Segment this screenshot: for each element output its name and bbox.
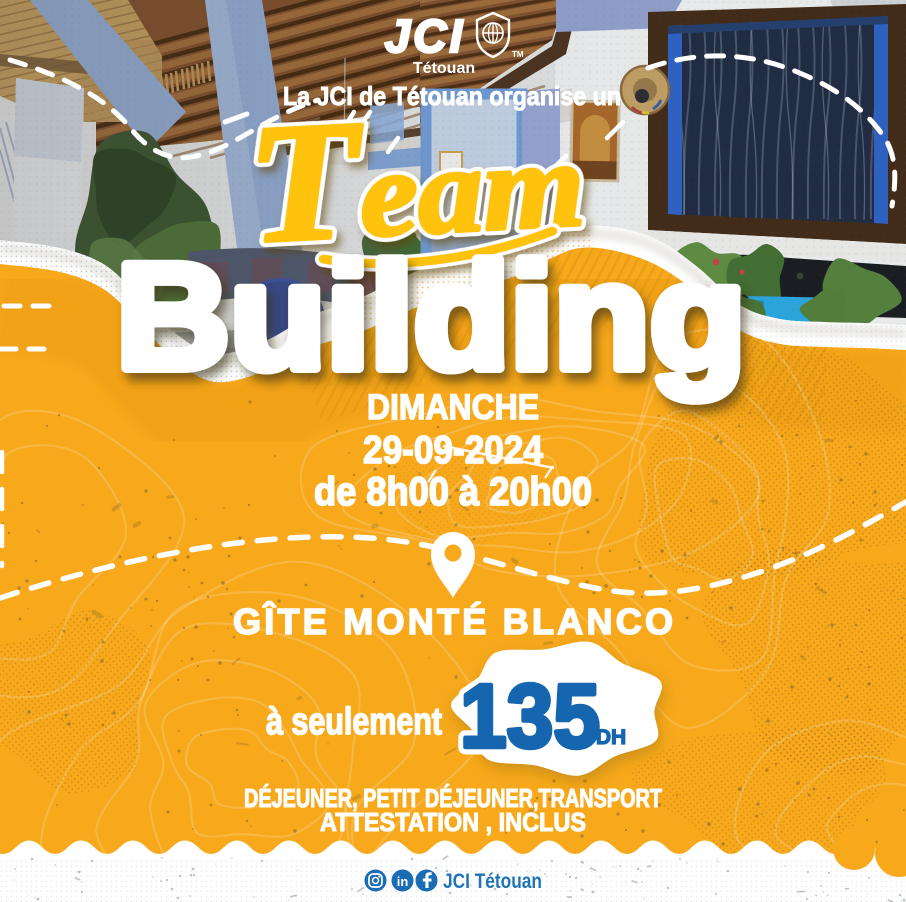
svg-text:ATTESTATION , INCLUS: ATTESTATION , INCLUS <box>320 807 586 837</box>
svg-text:Tétouan: Tétouan <box>413 60 475 77</box>
svg-text:DIMANCHE: DIMANCHE <box>367 388 539 427</box>
svg-text:GÎTE MONTÉ BLANCO: GÎTE MONTÉ BLANCO <box>233 600 673 642</box>
svg-text:à seulement: à seulement <box>266 701 442 743</box>
svg-text:JCI Tétouan: JCI Tétouan <box>443 870 542 893</box>
svg-text:DH: DH <box>596 726 626 749</box>
svg-text:Building: Building <box>116 232 746 400</box>
svg-text:de 8h00 à 20h00: de 8h00 à 20h00 <box>314 470 592 514</box>
svg-text:in: in <box>397 874 409 889</box>
svg-text:29-09-2024: 29-09-2024 <box>363 429 543 472</box>
svg-text:TM: TM <box>512 50 524 59</box>
svg-text:JCI: JCI <box>385 10 466 62</box>
svg-text:135: 135 <box>460 667 600 767</box>
